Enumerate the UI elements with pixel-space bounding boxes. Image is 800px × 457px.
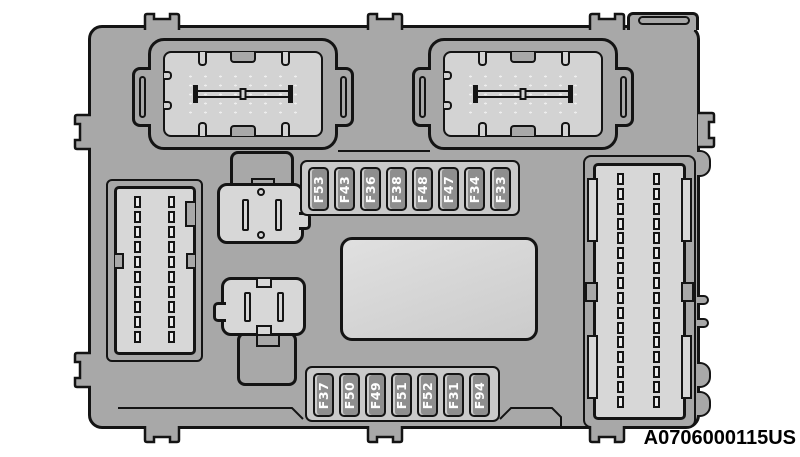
connector-pin xyxy=(168,271,175,283)
pin-column xyxy=(168,196,175,343)
connector-pin xyxy=(617,396,624,408)
connector-pin xyxy=(168,256,175,268)
keying-bump xyxy=(164,101,172,110)
fuse-label: F38 xyxy=(389,175,404,202)
connector-pin xyxy=(617,262,624,274)
connector-pin xyxy=(168,196,175,208)
fuse-F49: F49 xyxy=(365,373,386,417)
ear-slot xyxy=(340,76,347,118)
fuse-F43: F43 xyxy=(334,167,355,211)
large-connector-a xyxy=(148,38,338,150)
connector-pin xyxy=(617,277,624,289)
connector-pin xyxy=(653,336,660,348)
relay-slot xyxy=(244,292,251,322)
relay-upper xyxy=(217,183,304,244)
connector-pin xyxy=(134,301,141,313)
right-connector xyxy=(593,163,686,420)
keying-notch xyxy=(681,282,694,302)
connector-pin xyxy=(653,277,660,289)
connector-pin xyxy=(617,322,624,334)
keying-notch xyxy=(115,253,124,269)
fuse-F47: F47 xyxy=(438,167,459,211)
connector-pin xyxy=(617,336,624,348)
connector-pin xyxy=(134,196,141,208)
fuse-F38: F38 xyxy=(386,167,407,211)
relay-pin-hole xyxy=(257,231,265,239)
connector-pin xyxy=(653,381,660,393)
inner-tab xyxy=(198,52,207,66)
connector-b-left-ear xyxy=(412,67,431,127)
right-edge-ear-mid xyxy=(697,362,711,388)
connector-pin xyxy=(617,307,624,319)
relay-tab xyxy=(256,325,272,334)
relay-slot xyxy=(277,292,284,322)
large-connector-b xyxy=(428,38,618,150)
fuse-label: F52 xyxy=(420,381,435,408)
inner-tab xyxy=(198,122,207,136)
pin-column xyxy=(134,196,141,343)
connector-pin xyxy=(168,286,175,298)
fuse-F50: F50 xyxy=(339,373,360,417)
connector-pin xyxy=(134,271,141,283)
connector-pin xyxy=(168,331,175,343)
pin-column xyxy=(653,173,660,408)
inner-tab xyxy=(230,125,256,136)
ear-slot xyxy=(620,76,627,118)
fuse-F37: F37 xyxy=(313,373,334,417)
connector-pin xyxy=(653,203,660,215)
fuse-label: F49 xyxy=(368,381,383,408)
connector-pin xyxy=(653,396,660,408)
inner-tab xyxy=(510,52,536,63)
connector-pin xyxy=(617,232,624,244)
fuse-F53: F53 xyxy=(308,167,329,211)
keying-notch xyxy=(186,253,195,269)
inner-tab xyxy=(561,122,570,136)
connector-pin xyxy=(134,211,141,223)
relay-side-nub xyxy=(213,302,226,322)
connector-pin xyxy=(653,218,660,230)
keying-notch xyxy=(185,201,195,227)
fuse-F51: F51 xyxy=(391,373,412,417)
relay-pin-hole xyxy=(257,188,265,196)
fuse-label: F51 xyxy=(394,381,409,408)
mounting-tab-bottom-center xyxy=(366,426,404,446)
inner-tab xyxy=(478,122,487,136)
inner-tab xyxy=(281,52,290,66)
keying-bump xyxy=(444,101,452,110)
connector-pin xyxy=(653,247,660,259)
fusebox-diagram: F53F43F36F38F48F47F34F33 F37F50F49F51F52… xyxy=(0,0,800,457)
fuse-F31: F31 xyxy=(443,373,464,417)
connector-b-inner xyxy=(443,51,603,137)
mounting-tab-top-right xyxy=(588,10,626,30)
connector-pin xyxy=(134,316,141,328)
pin-column xyxy=(617,173,624,408)
connector-pin xyxy=(617,381,624,393)
connector-pin xyxy=(168,226,175,238)
inner-tab xyxy=(281,122,290,136)
connector-pin xyxy=(134,241,141,253)
connector-pin xyxy=(617,203,624,215)
fuse-F34: F34 xyxy=(464,167,485,211)
right-edge-nub-upper xyxy=(697,295,709,305)
connector-b-right-ear xyxy=(615,67,634,127)
left-connector xyxy=(114,186,196,355)
keying-bump xyxy=(164,71,172,80)
connector-pin xyxy=(653,322,660,334)
inner-tab xyxy=(478,52,487,66)
connector-pin xyxy=(617,292,624,304)
inner-tab xyxy=(230,52,256,63)
relay-lower xyxy=(221,277,306,336)
connector-pin xyxy=(168,211,175,223)
connector-a-right-ear xyxy=(335,67,354,127)
fuse-label: F50 xyxy=(342,381,357,408)
connector-pin xyxy=(617,366,624,378)
ear-slot xyxy=(419,76,426,118)
fuse-F94: F94 xyxy=(469,373,490,417)
connector-rail xyxy=(587,335,598,399)
mounting-tab-top-center xyxy=(366,10,404,30)
connector-pin xyxy=(653,232,660,244)
right-edge-ear-top xyxy=(697,150,711,177)
relay-tab xyxy=(256,279,272,288)
fuse-label: F34 xyxy=(467,175,482,202)
mounting-tab-top-left xyxy=(143,10,181,30)
figure-code-label: A0706000115US xyxy=(600,427,796,450)
connector-a-left-ear xyxy=(132,67,151,127)
inner-tab xyxy=(561,52,570,66)
connector-pin xyxy=(653,173,660,185)
fuse-label: F43 xyxy=(337,175,352,202)
relay-slot xyxy=(242,199,249,231)
connector-pin xyxy=(653,307,660,319)
relay-slot xyxy=(275,199,282,231)
connector-pin xyxy=(653,351,660,363)
center-module xyxy=(340,237,538,341)
connector-rail xyxy=(587,178,598,242)
fuse-label: F31 xyxy=(446,381,461,408)
fuse-row-bottom: F37F50F49F51F52F31F94 xyxy=(305,366,500,422)
mounting-tab-bottom-left xyxy=(143,426,181,446)
connector-pin xyxy=(134,286,141,298)
connector-pin xyxy=(617,173,624,185)
connector-pin xyxy=(168,241,175,253)
connector-lever xyxy=(473,85,573,103)
ear-slot xyxy=(139,76,146,118)
mounting-tab-left-upper xyxy=(71,113,91,151)
fuse-row-top: F53F43F36F38F48F47F34F33 xyxy=(300,160,520,216)
fuse-label: F94 xyxy=(472,381,487,408)
right-edge-nub-lower xyxy=(697,318,709,328)
top-right-step-cover xyxy=(632,24,694,31)
fuse-F36: F36 xyxy=(360,167,381,211)
keying-notch xyxy=(585,282,598,302)
connector-lever xyxy=(193,85,293,103)
fuse-F52: F52 xyxy=(417,373,438,417)
mounting-tab-left-lower xyxy=(71,351,91,389)
fuse-label: F33 xyxy=(493,175,508,202)
connector-pin xyxy=(653,188,660,200)
fuse-F48: F48 xyxy=(412,167,433,211)
connector-pin xyxy=(617,218,624,230)
fuse-F33: F33 xyxy=(490,167,511,211)
connector-pin xyxy=(134,256,141,268)
connector-pin xyxy=(134,331,141,343)
mounting-tab-right xyxy=(698,111,718,149)
connector-pin xyxy=(617,247,624,259)
inner-tab xyxy=(510,125,536,136)
fuse-label: F48 xyxy=(415,175,430,202)
connector-a-inner xyxy=(163,51,323,137)
connector-pin xyxy=(617,188,624,200)
connector-pin xyxy=(168,316,175,328)
connector-pin xyxy=(134,226,141,238)
connector-pin xyxy=(653,262,660,274)
connector-rail xyxy=(681,335,692,399)
connector-pin xyxy=(653,292,660,304)
connector-pin xyxy=(617,351,624,363)
fuse-label: F53 xyxy=(311,175,326,202)
connector-rail xyxy=(681,178,692,242)
fuse-label: F37 xyxy=(316,381,331,408)
fuse-label: F36 xyxy=(363,175,378,202)
connector-pin xyxy=(168,301,175,313)
connector-pin xyxy=(653,366,660,378)
keying-bump xyxy=(444,71,452,80)
right-edge-ear-bottom xyxy=(697,391,711,417)
fuse-label: F47 xyxy=(441,175,456,202)
top-right-slot xyxy=(638,16,690,25)
